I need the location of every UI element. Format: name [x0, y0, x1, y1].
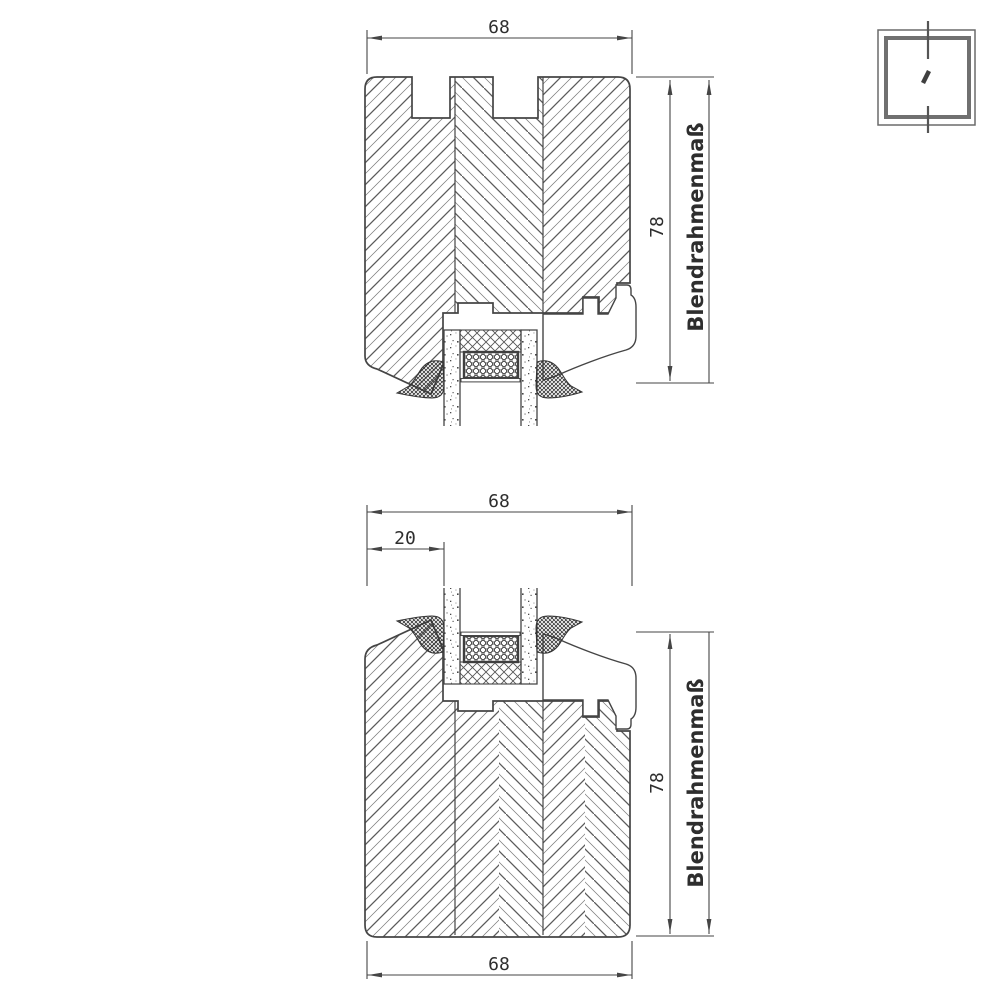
arrowhead: [368, 973, 382, 978]
bottom-height-dim-label: 78: [647, 772, 668, 794]
top-width-dim-label: 68: [488, 17, 510, 38]
bottom-section-drawing: 68 20 78 Blendrahmenmaß: [365, 491, 714, 979]
drawing-canvas: 68 78 Blendrahmenmaß: [0, 0, 1000, 1000]
arrowhead: [668, 81, 673, 95]
arrowhead: [368, 547, 382, 552]
bottom-top-width-dim-label: 68: [488, 491, 510, 512]
top-height-dim-label: 78: [647, 216, 668, 238]
bottom-width-dim-label: 68: [488, 954, 510, 975]
arrowhead: [668, 366, 673, 380]
arrowhead: [617, 510, 631, 515]
arrowhead: [617, 973, 631, 978]
glass-pane-outer: [444, 588, 460, 684]
glass-pane-outer: [444, 330, 460, 426]
glass-offset-dim-label: 20: [394, 528, 416, 549]
arrowhead: [707, 81, 712, 95]
arrowhead: [617, 36, 631, 41]
arrowhead: [668, 919, 673, 933]
glass-pane-inner: [521, 588, 537, 684]
glass-pane-inner: [521, 330, 537, 426]
edge-sealant: [460, 662, 521, 684]
arrowhead: [707, 919, 712, 933]
secondary-seal: [461, 379, 520, 382]
arrowhead: [429, 547, 443, 552]
arrowhead: [368, 510, 382, 515]
bottom-frame-dimension-label: Blendrahmenmaß: [684, 678, 708, 887]
edge-sealant: [460, 330, 521, 352]
window-section-indicator-icon: [878, 21, 975, 133]
top-section-drawing: 68 78 Blendrahmenmaß: [365, 17, 714, 426]
arrowhead: [368, 36, 382, 41]
frame-section-drawing: 68 78 Blendrahmenmaß: [0, 0, 1000, 1000]
spacer-bar: [464, 636, 518, 662]
arrowhead: [668, 635, 673, 649]
spacer-bar: [464, 352, 518, 378]
secondary-seal: [461, 632, 520, 635]
top-frame-dimension-label: Blendrahmenmaß: [684, 122, 708, 331]
